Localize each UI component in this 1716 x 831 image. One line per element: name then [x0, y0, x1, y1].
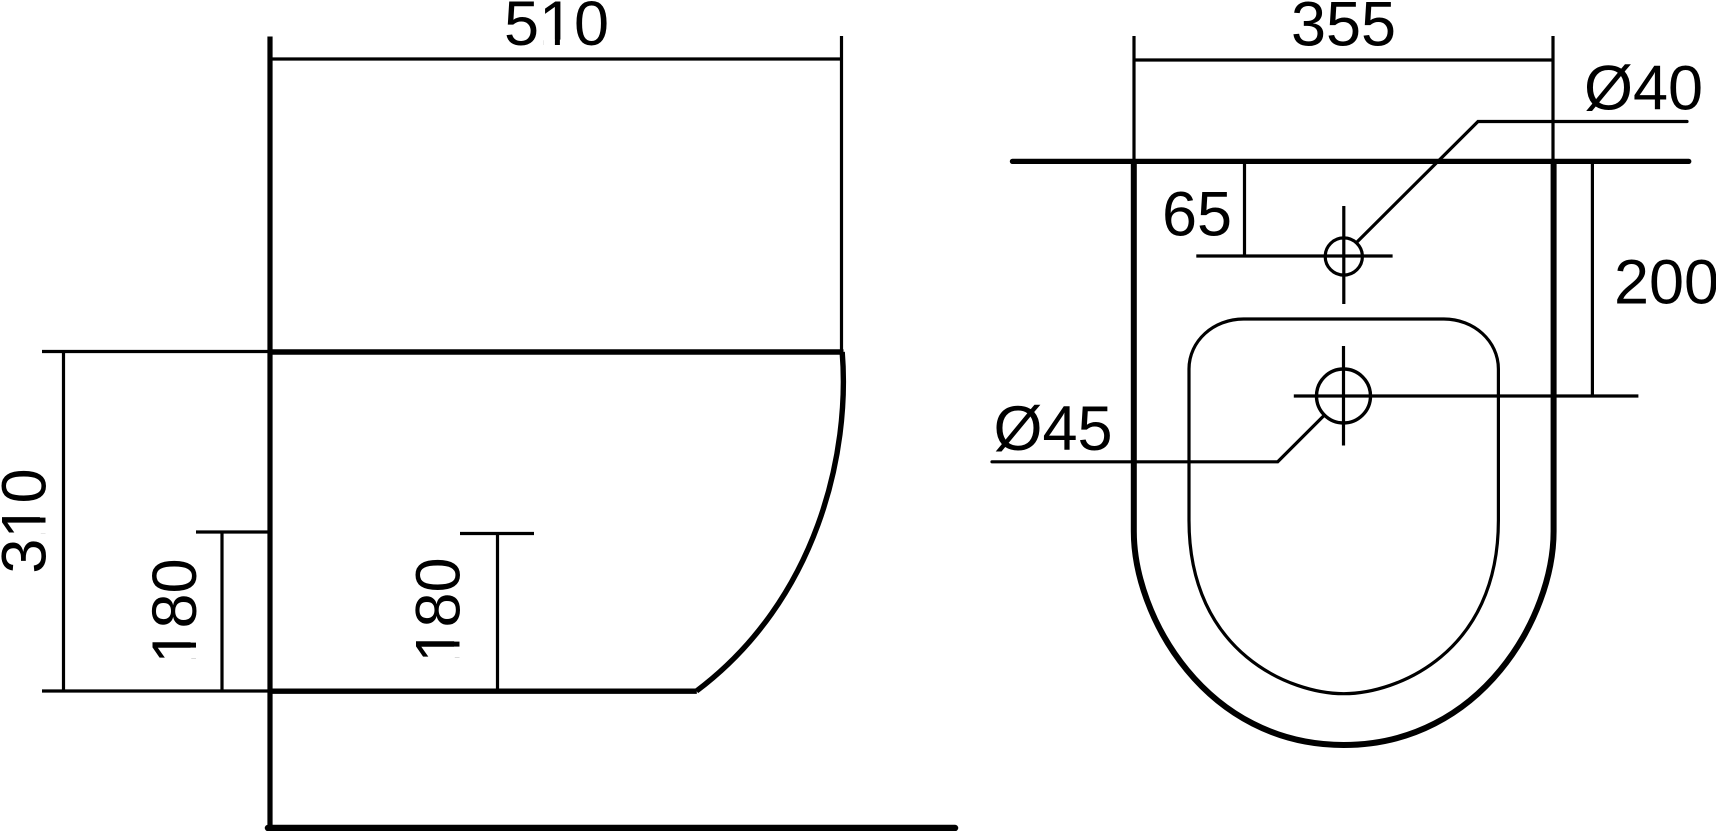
svg-text:355: 355 [1291, 0, 1396, 60]
svg-text:Ø40: Ø40 [1584, 54, 1703, 124]
svg-text:Ø45: Ø45 [993, 394, 1112, 464]
svg-text:510: 510 [504, 0, 609, 59]
svg-text:200: 200 [1614, 248, 1716, 318]
svg-text:65: 65 [1162, 180, 1232, 250]
svg-text:310: 310 [0, 468, 59, 573]
svg-text:180: 180 [140, 558, 210, 663]
svg-text:180: 180 [404, 557, 474, 662]
